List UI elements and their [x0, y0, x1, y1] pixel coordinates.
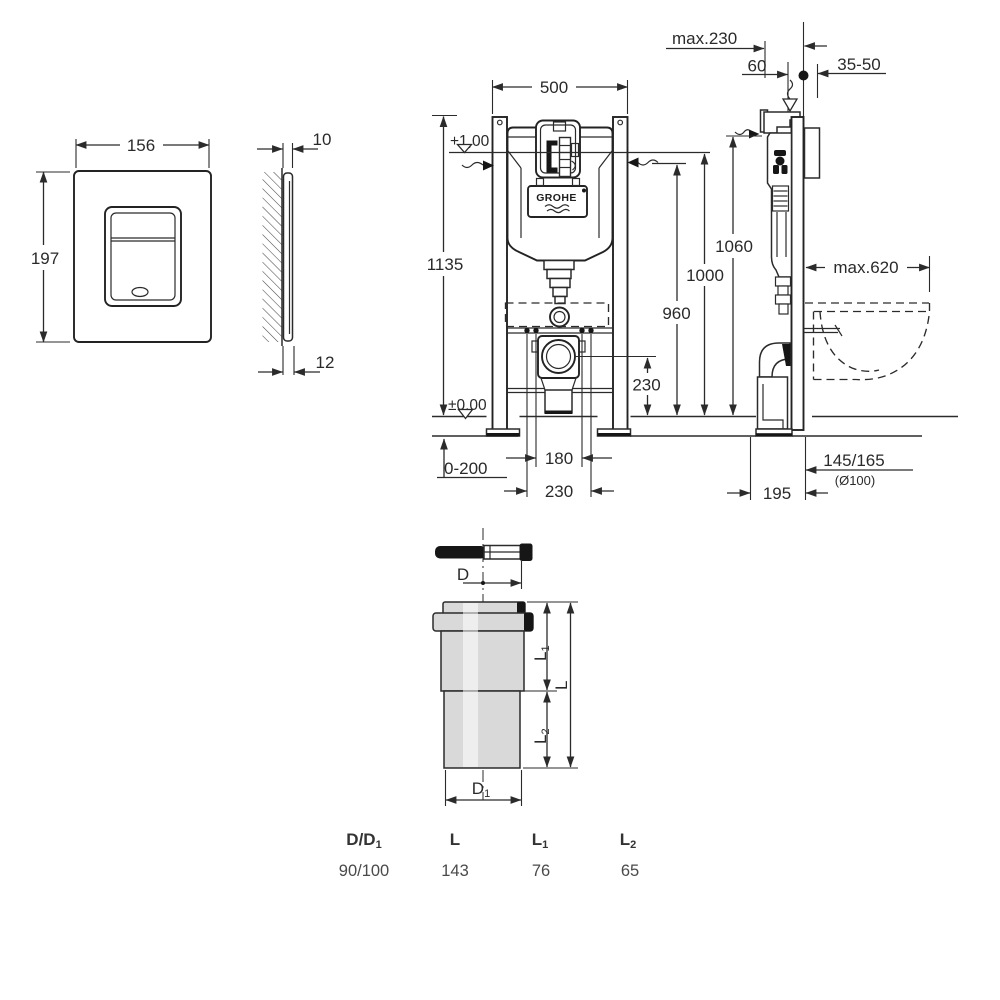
- dim-label-bolt-180: 180: [545, 449, 573, 468]
- dim-label-plate-width: 156: [127, 136, 155, 155]
- brand-text: GROHE: [536, 192, 577, 204]
- fixing-bolt: [524, 328, 529, 333]
- flush-pipe-ring: [550, 308, 569, 327]
- table-value-l1: 76: [532, 862, 550, 880]
- dim-label-l1: L1: [531, 645, 552, 661]
- flush-button-outer: [105, 207, 181, 306]
- dim-label-1060: 1060: [715, 237, 753, 256]
- dim-label-frame-width: 500: [540, 78, 568, 97]
- table-value-l: 143: [441, 862, 469, 880]
- dim-label-plate-thickness-bottom: 12: [316, 353, 335, 372]
- table-value-dd1: 90/100: [339, 862, 389, 880]
- wall-break-arrow-left: [462, 161, 494, 171]
- drain-connector-view: D L1 L L2 D1: [433, 528, 578, 806]
- connector-dimension-table: D/D1 L L1 L2 90/100 143 76 65: [339, 830, 639, 880]
- table-header-l2: L2: [620, 830, 637, 851]
- plate-profile: [284, 173, 293, 341]
- dim-label-bolt-230: 230: [545, 482, 573, 501]
- dim-label-1000: 1000: [686, 266, 724, 285]
- dim-label-outlet-offset: 145/165: [823, 451, 884, 470]
- fixing-bolt: [579, 328, 584, 333]
- table-header-l1: L1: [532, 830, 549, 851]
- installation-drawing: 156 197 10 12: [0, 0, 1000, 1000]
- technical-drawing-page: 156 197 10 12: [0, 0, 1000, 1000]
- table-value-l2: 65: [621, 862, 639, 880]
- dim-label-plate-thickness-top: 10: [313, 130, 332, 149]
- toilet-bowl-dashed: [805, 303, 930, 380]
- dim-label-d: D: [457, 565, 469, 584]
- table-header-dd1: D/D1: [346, 830, 381, 851]
- registered-mark-icon: [582, 189, 586, 193]
- outlet-pipe: [545, 390, 572, 413]
- fixing-bolt: [533, 328, 538, 333]
- flush-plate-side-panel: [805, 128, 820, 178]
- flush-pipe: [544, 261, 574, 304]
- dim-label-60: 60: [748, 57, 767, 76]
- dim-label-960: 960: [662, 304, 690, 323]
- wall-hatch: [263, 172, 283, 342]
- wall-break-arrow-right: [628, 158, 659, 168]
- dim-label-floor-buildup: 0-200: [444, 459, 487, 478]
- dim-label-outlet-diameter: (Ø100): [835, 473, 875, 488]
- side-rail: [792, 117, 804, 430]
- flush-plate-front-view: 156 197: [31, 136, 211, 342]
- dim-label-outlet-height: 230: [632, 376, 660, 395]
- inlet-pipe: [435, 544, 533, 562]
- frame-side-view: max.230 60 35-50: [666, 22, 930, 503]
- dim-label-max620: max.620: [833, 258, 898, 277]
- flush-plate-side-view: 10 12: [257, 130, 334, 375]
- reference-dot: [799, 71, 809, 81]
- connector-body: [433, 602, 533, 768]
- dim-label-l2: L2: [531, 728, 552, 744]
- wall-break-arrow-side: [735, 130, 760, 139]
- dim-label-wall-thickness: 35-50: [837, 55, 880, 74]
- frame-front-view: GROHE +1: [427, 78, 958, 501]
- dim-label-195: 195: [763, 484, 791, 503]
- table-header-l: L: [450, 830, 460, 849]
- fixing-bolt: [588, 328, 593, 333]
- level-label-top: +1,00: [450, 133, 490, 150]
- frame-rail-left: [493, 117, 508, 430]
- frame-rail-right: [613, 117, 628, 430]
- dim-label-plate-height: 197: [31, 249, 59, 268]
- dim-label-l: L: [552, 681, 571, 690]
- grohe-logo: GROHE: [528, 186, 587, 217]
- dim-label-frame-height: 1135: [427, 255, 464, 274]
- dim-label-d1: D1: [472, 779, 490, 800]
- wall-surface-pointer: [783, 80, 797, 111]
- dim-label-max230: max.230: [672, 29, 737, 48]
